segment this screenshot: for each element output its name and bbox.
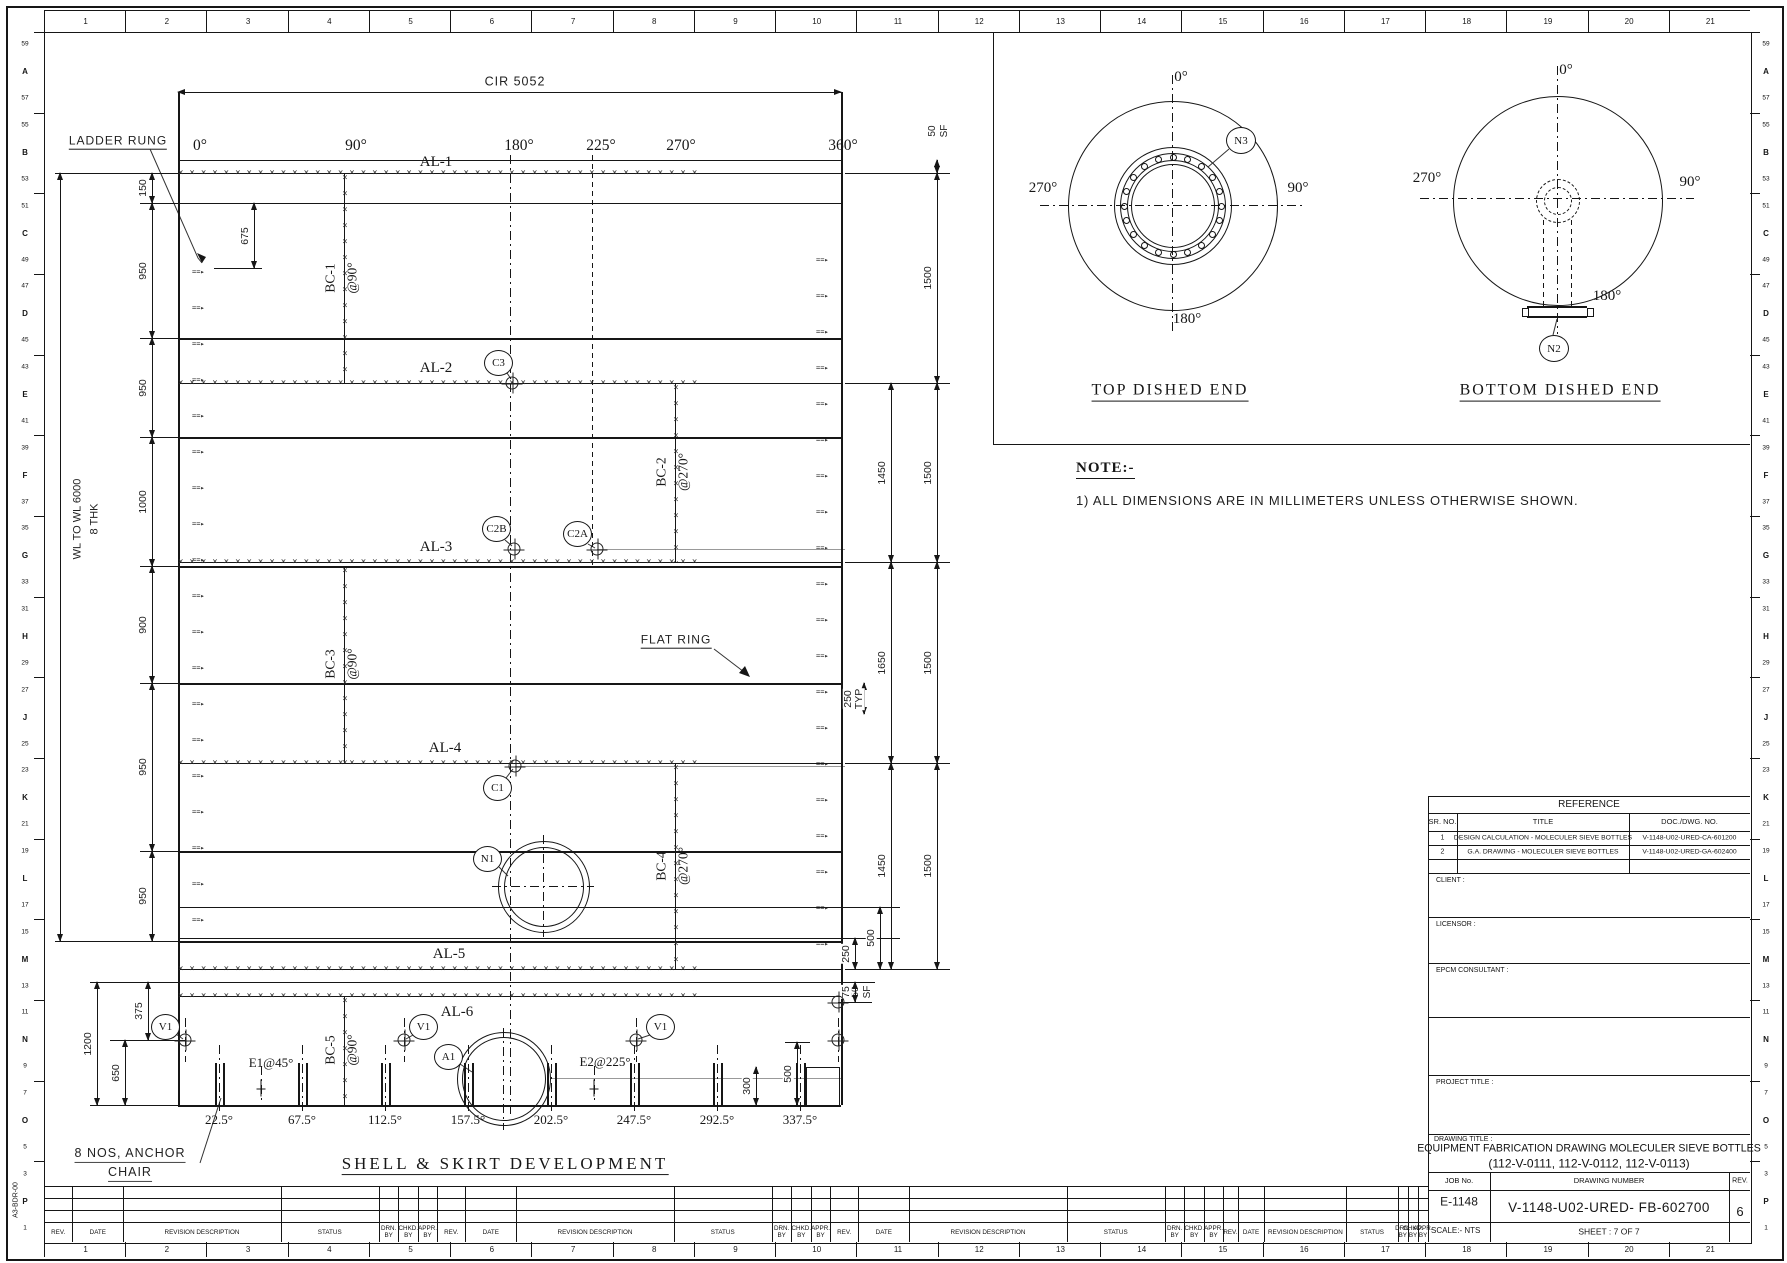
grid-col-cell: 8 [613, 10, 695, 32]
grid-col-cell: 12 [938, 1242, 1020, 1257]
dim-line [937, 562, 938, 763]
ladder-rung-right: ==▸ [816, 509, 829, 516]
development-title: SHELL & SKIRT DEVELOPMENT [342, 1155, 669, 1175]
callout-V1: V1 [151, 1014, 180, 1040]
grid-col-cell: 21 [1669, 1242, 1751, 1257]
seam-label-AL-6: AL-6 [441, 1005, 474, 1021]
grid-row-label: 57 [21, 96, 28, 103]
ladder-rung-left: ==▸ [192, 917, 205, 924]
drawing-sheet: 0° 90° 180° 270° N3 TOP DISHED END 0° 90… [0, 0, 1787, 1263]
grid-tick [34, 758, 44, 759]
weld-seam-xmarks: ××××××××××××××××××××××××××××××××××××××××… [178, 965, 841, 974]
grid-tick [1750, 1000, 1760, 1001]
grid-col-cell: 21 [1669, 10, 1751, 32]
rev-value: 6 [1736, 1205, 1743, 1219]
bottom-flange-tick-l [1522, 308, 1529, 317]
ladder-rung-right: ==▸ [816, 617, 829, 624]
dim-line [152, 683, 153, 851]
grid-row-label: 7 [23, 1091, 27, 1098]
skirt-angle-292.5°: 292.5° [700, 1113, 734, 1127]
weld-seam-xmarks: ××××××××××××××××××××××××××××××××××××××××… [178, 169, 841, 178]
ref-cell: G.A. DRAWING - MOLECULER SIEVE BOTTLES [1467, 848, 1618, 855]
grid-col-cell: 6 [450, 1242, 532, 1257]
grid-row-label: 17 [21, 902, 28, 909]
h-line [55, 941, 178, 942]
ladder-rung-right: ==▸ [816, 473, 829, 480]
rev-header: APPR. BY [418, 1222, 437, 1242]
ladder-rung-left: ==▸ [192, 593, 205, 600]
dim-text: 250 [841, 944, 852, 964]
angle-label-360°: 360° [828, 138, 857, 154]
ref-row-line [1428, 873, 1750, 874]
anchor-chair-leg [381, 1063, 383, 1105]
grid-row-label: 41 [1762, 418, 1769, 425]
coupling-mark [179, 1034, 192, 1047]
dim-line [937, 383, 938, 562]
drawing-number-value: V-1148-U02-URED- FB-602700 [1508, 1201, 1710, 1215]
thk-label: 8 THK [90, 504, 101, 535]
grid-col-cell: 1 [44, 10, 126, 32]
anchor-chair-leg [630, 1063, 632, 1105]
grid-row-label: 5 [1764, 1144, 1768, 1151]
grid-row-label: 55 [1762, 123, 1769, 130]
dim-text: 950 [138, 261, 149, 281]
grid-tick [34, 1000, 44, 1001]
tb-col-line [1729, 1172, 1730, 1242]
n3-label: N3 [1234, 135, 1247, 147]
coupling-mark [630, 1034, 643, 1047]
dim-line [855, 938, 856, 969]
grid-tick [34, 355, 44, 356]
seam-label-AL-1: AL-1 [420, 155, 453, 171]
section-line [597, 549, 845, 550]
bc-angle-BC-4: @270° [676, 847, 690, 885]
ladder-rung-right: ==▸ [816, 761, 829, 768]
grid-tick [1750, 516, 1760, 517]
dim-text: 1450 [877, 460, 888, 485]
grid-row-label: K [1763, 794, 1769, 802]
coupling-mark [506, 377, 519, 390]
anchor-chair-leg [796, 1063, 798, 1105]
grid-row-label: E [1763, 391, 1768, 399]
grid-row-label: O [1763, 1117, 1769, 1125]
rev-header: DRN. BY [1165, 1222, 1185, 1242]
callout-N1: N1 [473, 846, 502, 872]
grid-col-cell: 9 [694, 10, 776, 32]
grid-row-label: 13 [21, 983, 28, 990]
dim-line [152, 203, 153, 338]
grid-row-label: F [1764, 471, 1769, 479]
grid-row-label: 45 [21, 338, 28, 345]
ladder-rung-right: ==▸ [816, 869, 829, 876]
grid-row-label: 31 [1762, 607, 1769, 614]
dim-text: 950 [138, 757, 149, 777]
dim-text: 900 [138, 615, 149, 635]
rev-header: REV. [1223, 1222, 1238, 1242]
dim-text: 650 [111, 1063, 122, 1083]
note-heading: NOTE:- [1076, 460, 1135, 479]
callout-C2A: C2A [563, 521, 592, 547]
grid-col-cell: 16 [1263, 10, 1345, 32]
dim-text: 1500 [923, 460, 934, 485]
coupling-mark [832, 996, 845, 1009]
grid-row-label: 21 [21, 822, 28, 829]
bc-label-BC-1: BC-1 [323, 263, 337, 292]
rev-header: DRN. BY [772, 1222, 792, 1242]
nozzle-callout-n2: N2 [1539, 335, 1569, 362]
anchor-chair-centerline [800, 1045, 801, 1115]
grid-col-cell: 20 [1588, 10, 1670, 32]
grid-row-label: 41 [21, 418, 28, 425]
skirt-angle-337.5°: 337.5° [783, 1113, 817, 1127]
sheet-value: SHEET : 7 OF 7 [1578, 1228, 1639, 1237]
grid-row-label: 1 [1764, 1225, 1768, 1232]
ladder-rung-left: ==▸ [192, 701, 205, 708]
dim-line [880, 907, 881, 969]
grid-tick [34, 516, 44, 517]
h-line [140, 851, 178, 852]
weld-seam-xmarks: ××××××××××××××××××××××××××××××××××××××××… [178, 992, 841, 1001]
grid-row-label: 3 [1764, 1171, 1768, 1178]
grid-row-label: M [1763, 955, 1770, 963]
grid-tick [1750, 193, 1760, 194]
grid-row-label: 51 [1762, 203, 1769, 210]
grid-col-cell: 17 [1344, 1242, 1426, 1257]
grid-row-label: 39 [1762, 445, 1769, 452]
grid-col-cell: 12 [938, 10, 1020, 32]
sf-top-sf: SF [940, 125, 950, 138]
seam-label-AL-4: AL-4 [429, 741, 462, 757]
anchor-chair-leg [713, 1063, 715, 1105]
flange-bolt [1216, 188, 1223, 195]
ref-title: REFERENCE [1558, 799, 1620, 810]
skirt-angle-67.5°: 67.5° [288, 1113, 316, 1127]
ladder-rung-label: LADDER RUNG [69, 135, 167, 150]
h-line [140, 437, 178, 438]
grid-tick [34, 32, 44, 33]
callout-V1: V1 [409, 1014, 438, 1040]
grid-row-label: 33 [21, 580, 28, 587]
grid-row-label: 29 [1762, 660, 1769, 667]
grid-row-label: B [1763, 149, 1769, 157]
rev-header: REVISION DESCRIPTION [516, 1222, 673, 1242]
grid-row-label: C [1763, 229, 1769, 237]
dim-line [148, 982, 149, 1040]
ladder-rung-right: ==▸ [816, 653, 829, 660]
dim-line [756, 1067, 757, 1105]
ladder-rung-left: ==▸ [192, 845, 205, 852]
client-label: CLIENT : [1436, 877, 1465, 884]
dim-text: TYP [854, 687, 865, 709]
rev-label: REV. [1732, 1177, 1748, 1184]
bottom-view-centerline-v [1557, 66, 1558, 334]
grid-row-label: 49 [1762, 257, 1769, 264]
grid-col-cell: 10 [775, 1242, 857, 1257]
dim-line [855, 982, 856, 1002]
rev-header: APPR. BY [811, 1222, 830, 1242]
dim-line [60, 173, 61, 941]
dim-line [125, 1040, 126, 1105]
job-no-label: JOB No. [1445, 1177, 1473, 1185]
grid-row-label: 15 [1762, 929, 1769, 936]
ref-row-line [1428, 831, 1750, 832]
note-item-1: 1) ALL DIMENSIONS ARE IN MILLIMETERS UNL… [1076, 494, 1578, 508]
bottom-center-circle-inner [1544, 187, 1572, 215]
grid-row-label: 23 [1762, 768, 1769, 775]
ladder-rung-right: ==▸ [816, 941, 829, 948]
rev-header: CHKD. BY [398, 1222, 418, 1242]
h-line [90, 1105, 178, 1106]
ref-cell: V-1148-U02-URED-GA-602400 [1642, 848, 1736, 855]
grid-tick [34, 193, 44, 194]
anchor-chair-centerline [551, 1045, 552, 1115]
cir-dim-label: CIR 5052 [485, 75, 546, 88]
sf-bottom-sf: SF [863, 986, 873, 999]
anchor-chair-centerline [717, 1045, 718, 1115]
grid-col-cell: 10 [775, 10, 857, 32]
grid-tick [34, 435, 44, 436]
rev-header: REV. [437, 1222, 465, 1242]
grid-row-label: 19 [21, 849, 28, 856]
rev-header: STATUS [1346, 1222, 1397, 1242]
wl-dim-label: WL TO WL 6000 [73, 479, 84, 560]
grid-row-label: 29 [21, 660, 28, 667]
grid-row-label: F [23, 471, 28, 479]
grid-row-label: B [22, 149, 28, 157]
strip-top-line [44, 10, 1750, 11]
grid-row-label: 9 [23, 1064, 27, 1071]
e1-label: E1@45° [249, 1056, 294, 1070]
h-line [140, 566, 178, 567]
grid-row-label: O [22, 1117, 28, 1125]
dim-text: 675 [240, 226, 251, 246]
ladder-rung-right: ==▸ [816, 365, 829, 372]
ladder-rung-right: ==▸ [816, 293, 829, 300]
licensor-label: LICENSOR : [1436, 921, 1476, 928]
grid-col-cell: 5 [369, 10, 451, 32]
h-line [55, 173, 178, 174]
ref-header: DOC./DWG. NO. [1661, 818, 1718, 826]
top-view-angle-0: 0° [1174, 70, 1188, 86]
ladder-rung-left: ==▸ [192, 485, 205, 492]
grid-row-label: 49 [21, 257, 28, 264]
h-line [140, 338, 178, 339]
callout-C2B: C2B [482, 516, 511, 542]
grid-row-label: 51 [21, 203, 28, 210]
dim-line [937, 763, 938, 969]
grid-row-label: 19 [1762, 849, 1769, 856]
dim-line [254, 203, 255, 268]
e-nozzle-mark [594, 1080, 595, 1097]
grid-tick [1750, 274, 1760, 275]
h-line [993, 444, 1750, 445]
rev-header: REVISION DESCRIPTION [1264, 1222, 1346, 1242]
bc-angle-BC-5: @90° [345, 1034, 359, 1065]
grid-row-label: M [22, 955, 29, 963]
ladder-rung-right: ==▸ [816, 797, 829, 804]
grid-col-cell: 18 [1425, 1242, 1507, 1257]
anchor-chair-centerline [302, 1045, 303, 1115]
grid-col-cell: 2 [125, 1242, 207, 1257]
grid-row-label: L [23, 875, 28, 883]
grid-row-label: P [1763, 1197, 1768, 1205]
ref-col-line [1457, 813, 1458, 873]
grid-col-cell: 17 [1344, 10, 1426, 32]
bc-label-BC-2: BC-2 [654, 457, 668, 486]
flat-ring-label: FLAT RING [641, 634, 712, 649]
grid-row-label: J [1764, 713, 1768, 721]
grid-col-cell: 13 [1019, 10, 1101, 32]
grid-row-label: 9 [1764, 1064, 1768, 1071]
grid-row-label: 25 [21, 741, 28, 748]
skirt-angle-112.5°: 112.5° [368, 1113, 402, 1127]
bc-angle-BC-1: @90° [345, 262, 359, 293]
grid-col-cell: 14 [1100, 10, 1182, 32]
ladder-rung-right: ==▸ [816, 329, 829, 336]
grid-row-label: 11 [22, 1010, 29, 1017]
rev-header: STATUS [281, 1222, 379, 1242]
grid-row-label: G [1763, 552, 1769, 560]
grid-row-label: 47 [21, 284, 28, 291]
tb-col-line [1490, 1172, 1491, 1242]
anchor-chair-leg [638, 1063, 640, 1105]
v-line [806, 1067, 807, 1105]
coupling-mark [832, 1034, 845, 1047]
ref-row-line [1428, 859, 1750, 860]
v-line [993, 32, 994, 444]
dim-line [891, 383, 892, 562]
bottom-view-angle-90: 90° [1680, 175, 1701, 191]
ref-row-line [1428, 813, 1750, 814]
grid-row-label: 43 [1762, 365, 1769, 372]
rev-row-line [44, 1186, 1428, 1187]
grid-col-cell: 20 [1588, 1242, 1670, 1257]
anchor-chair-leg [389, 1063, 391, 1105]
grid-tick [1750, 677, 1760, 678]
grid-row-label: G [22, 552, 28, 560]
scale-value: SCALE:- NTS [1431, 1227, 1480, 1236]
rev-row-line [44, 1198, 1428, 1199]
rev-header: CHKD. BY [1184, 1222, 1204, 1242]
dim-text: 1500 [923, 265, 934, 290]
grid-tick [34, 274, 44, 275]
skirt-angle-22.5°: 22.5° [205, 1113, 233, 1127]
anchor-chair-leg [215, 1063, 217, 1105]
grid-row-label: 11 [1763, 1010, 1770, 1017]
rev-header: DATE [858, 1222, 909, 1242]
grid-col-cell: 2 [125, 10, 207, 32]
nozzle-callout-n3: N3 [1226, 127, 1256, 154]
drawing-title-line1: EQUIPMENT FABRICATION DRAWING MOLECULER … [1417, 1143, 1761, 1154]
ref-top [1428, 796, 1750, 797]
tb-row-line [1428, 1017, 1750, 1018]
dim-text: 1450 [877, 853, 888, 878]
grid-row-label: 21 [1762, 822, 1769, 829]
ladder-rung-left: ==▸ [192, 737, 205, 744]
nozzle-circle-inner [504, 847, 584, 927]
ladder-rung-right: ==▸ [816, 581, 829, 588]
grid-row-label: 39 [21, 445, 28, 452]
flange-bolt [1141, 242, 1148, 249]
anchor-chair-centerline [634, 1045, 635, 1115]
tb-row-line [1428, 963, 1750, 964]
grid-row-label: 59 [21, 42, 28, 49]
rev-header: DRN. BY [379, 1222, 399, 1242]
bc-label-BC-4: BC-4 [654, 851, 668, 880]
grid-tick [1750, 597, 1760, 598]
grid-col-cell: 1 [44, 1242, 126, 1257]
grid-tick [34, 839, 44, 840]
grid-col-cell: 19 [1506, 10, 1588, 32]
grid-tick [34, 1081, 44, 1082]
grid-row-label: 57 [1762, 96, 1769, 103]
flange-bolt [1218, 203, 1225, 210]
grid-row-label: 55 [21, 123, 28, 130]
ladder-rung-left: ==▸ [192, 809, 205, 816]
bottom-view-angle-0: 0° [1559, 63, 1573, 79]
grid-col-cell: 11 [856, 10, 938, 32]
tb-row-line [1428, 1190, 1750, 1191]
grid-row-label: A [22, 68, 28, 76]
ladder-rung-left: ==▸ [192, 377, 205, 384]
grid-col-cell: 7 [531, 10, 613, 32]
dim-line [152, 173, 153, 203]
bottom-view-angle-180: 180° [1593, 289, 1622, 305]
bc-angle-BC-2: @270° [676, 453, 690, 491]
grid-tick [1750, 1081, 1760, 1082]
anchor-note-line1: 8 NOS, ANCHOR [75, 1147, 186, 1163]
dim-line [891, 763, 892, 969]
skirt-angle-202.5°: 202.5° [534, 1113, 568, 1127]
grid-row-label: L [1764, 875, 1769, 883]
n2-label: N2 [1547, 343, 1560, 355]
grid-tick [1750, 32, 1760, 33]
nozzle-circle-inner [462, 1037, 546, 1121]
grid-row-label: N [22, 1036, 28, 1044]
callout-C3: C3 [484, 350, 513, 376]
grid-row-label: 13 [1762, 983, 1769, 990]
skirt-angle-247.5°: 247.5° [617, 1113, 651, 1127]
h-line [806, 1067, 839, 1068]
v-line [839, 1067, 840, 1105]
grid-row-label: D [1763, 310, 1769, 318]
grid-row-label: 35 [21, 526, 28, 533]
bottom-flange-tick-r [1587, 308, 1594, 317]
dim-text: 1650 [877, 650, 888, 675]
project-title-label: PROJECT TITLE : [1436, 1079, 1493, 1086]
ref-header: TITLE [1533, 818, 1553, 826]
rev-header: DATE [1238, 1222, 1265, 1242]
top-view-angle-270: 270° [1029, 181, 1058, 197]
job-no-value: E-1148 [1440, 1196, 1478, 1209]
e2-label: E2@225° [579, 1055, 630, 1069]
tb-row-line [1428, 1172, 1750, 1173]
ref-cell: 1 [1441, 834, 1445, 841]
ladder-rung-left: ==▸ [192, 557, 205, 564]
ref-cell: DESIGN CALCULATION - MOLECULER SIEVE BOT… [1454, 834, 1632, 841]
grid-tick [1750, 435, 1760, 436]
dim-text: 375 [134, 1001, 145, 1021]
grid-col-cell: 11 [856, 1242, 938, 1257]
bc-angle-BC-3: @90° [345, 648, 359, 679]
v-line [1428, 796, 1429, 1242]
grid-tick [1750, 919, 1760, 920]
seam-label-AL-2: AL-2 [420, 361, 453, 377]
rev-row-line [44, 1210, 1428, 1211]
grid-row-label: 17 [1762, 902, 1769, 909]
grid-col-cell: 8 [613, 1242, 695, 1257]
dim-text: 500 [783, 1064, 794, 1084]
